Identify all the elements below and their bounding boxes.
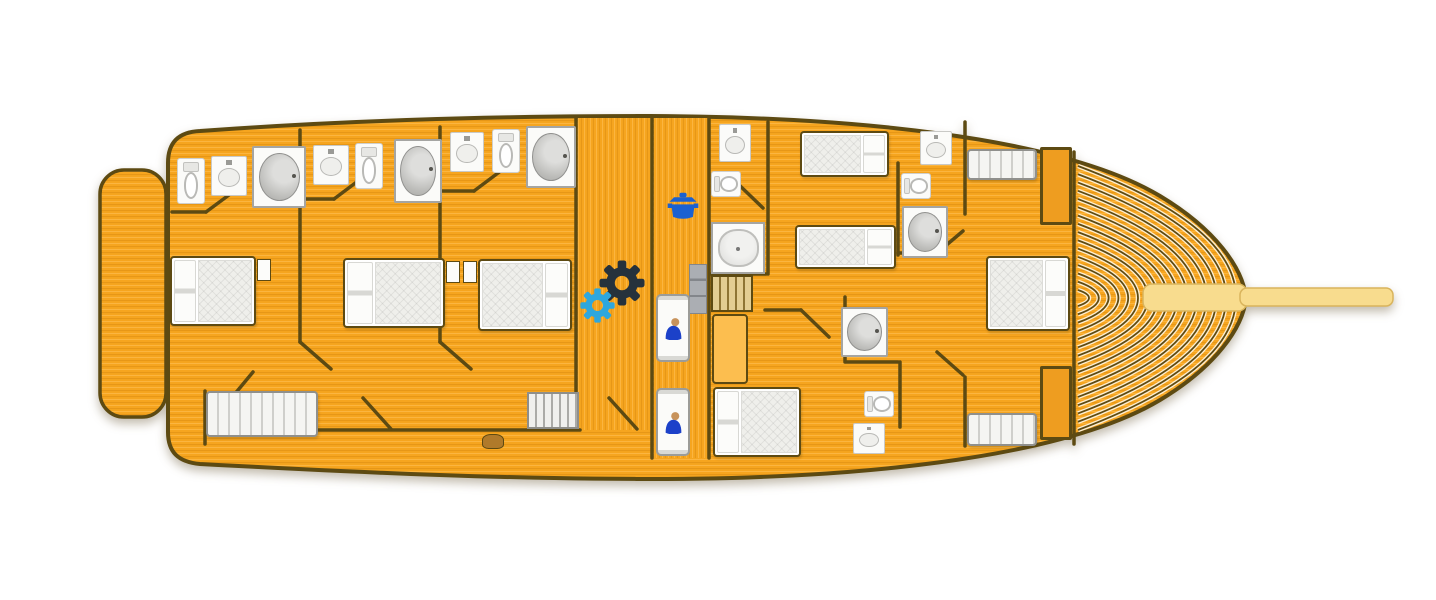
- double-bed-aft-cabin-2: [343, 258, 445, 328]
- single-bed-mid-2: [795, 225, 896, 269]
- shower-bow-bathroom: [841, 307, 888, 357]
- crew-person-icon: [663, 410, 684, 435]
- crew-berth-2: [656, 388, 690, 456]
- pillow: [174, 260, 196, 322]
- crew-person-icon: [663, 316, 684, 341]
- settee-bow-port: [967, 149, 1037, 180]
- step-aft-corridor: [482, 434, 504, 449]
- mattress: [799, 229, 865, 265]
- pillow: [1045, 260, 1066, 327]
- sink-aft-cabin-2: [313, 145, 349, 185]
- sink-aft-cabin-1: [211, 156, 247, 196]
- toilet-mid-bathroom: [901, 173, 931, 199]
- shower-aft-cabin-2: [394, 139, 442, 203]
- cooking-pot-icon: [665, 191, 701, 225]
- sink-galley-bathroom: [719, 124, 751, 162]
- pillow: [717, 391, 739, 453]
- yacht-deck-plan: [0, 0, 1436, 600]
- nightstand-aft-cabin-3: [463, 261, 477, 283]
- pillow: [863, 135, 885, 173]
- cabinet-fridge: [689, 264, 707, 314]
- pillow: [867, 229, 892, 265]
- staircase-main: [711, 275, 753, 312]
- nightstand-aft-cabin-2: [446, 261, 460, 283]
- double-bed-aft-cabin-1: [170, 256, 256, 326]
- mattress: [741, 391, 797, 453]
- staircase-aft-corridor: [527, 392, 579, 429]
- toilet-aft-cabin-3: [492, 129, 520, 173]
- mattress: [482, 263, 543, 327]
- wardrobe-bow-port: [1040, 147, 1072, 225]
- shower-aft-cabin-1: [252, 146, 306, 208]
- double-bed-aft-cabin-3: [478, 259, 572, 331]
- toilet-galley-bathroom: [711, 171, 741, 197]
- pillow: [545, 263, 569, 327]
- table-mid-cabin: [712, 314, 748, 384]
- mattress: [375, 262, 442, 324]
- bathtub-galley-bathroom: [711, 222, 765, 274]
- wardrobe-bow-starboard: [1040, 366, 1072, 440]
- cooking-pot-icon: [665, 191, 701, 225]
- nightstand-aft-cabin-1: [257, 259, 271, 281]
- sink-mid-bathroom: [920, 131, 952, 165]
- double-bed-bow-cabin: [986, 256, 1070, 331]
- mattress: [804, 135, 861, 173]
- crew-berth-1: [656, 294, 690, 362]
- fixtures-layer: [0, 0, 1436, 600]
- shower-mid-bathroom: [902, 206, 948, 258]
- single-bed-mid-1: [800, 131, 889, 177]
- toilet-aft-cabin-1: [177, 158, 205, 204]
- mattress: [990, 260, 1043, 327]
- gear-icon-blue: [580, 288, 615, 323]
- mattress: [198, 260, 253, 322]
- pillow: [347, 262, 373, 324]
- sofa-aft-cabin: [206, 391, 318, 437]
- sink-bow-bathroom: [853, 423, 885, 454]
- toilet-aft-cabin-2: [355, 143, 383, 189]
- double-bed-mid-cabin: [713, 387, 801, 457]
- sink-aft-cabin-3: [450, 132, 484, 172]
- toilet-bow-bathroom: [864, 391, 894, 417]
- gear-icon: [580, 288, 615, 323]
- settee-bow-starboard: [967, 413, 1037, 446]
- shower-aft-cabin-3: [526, 126, 576, 188]
